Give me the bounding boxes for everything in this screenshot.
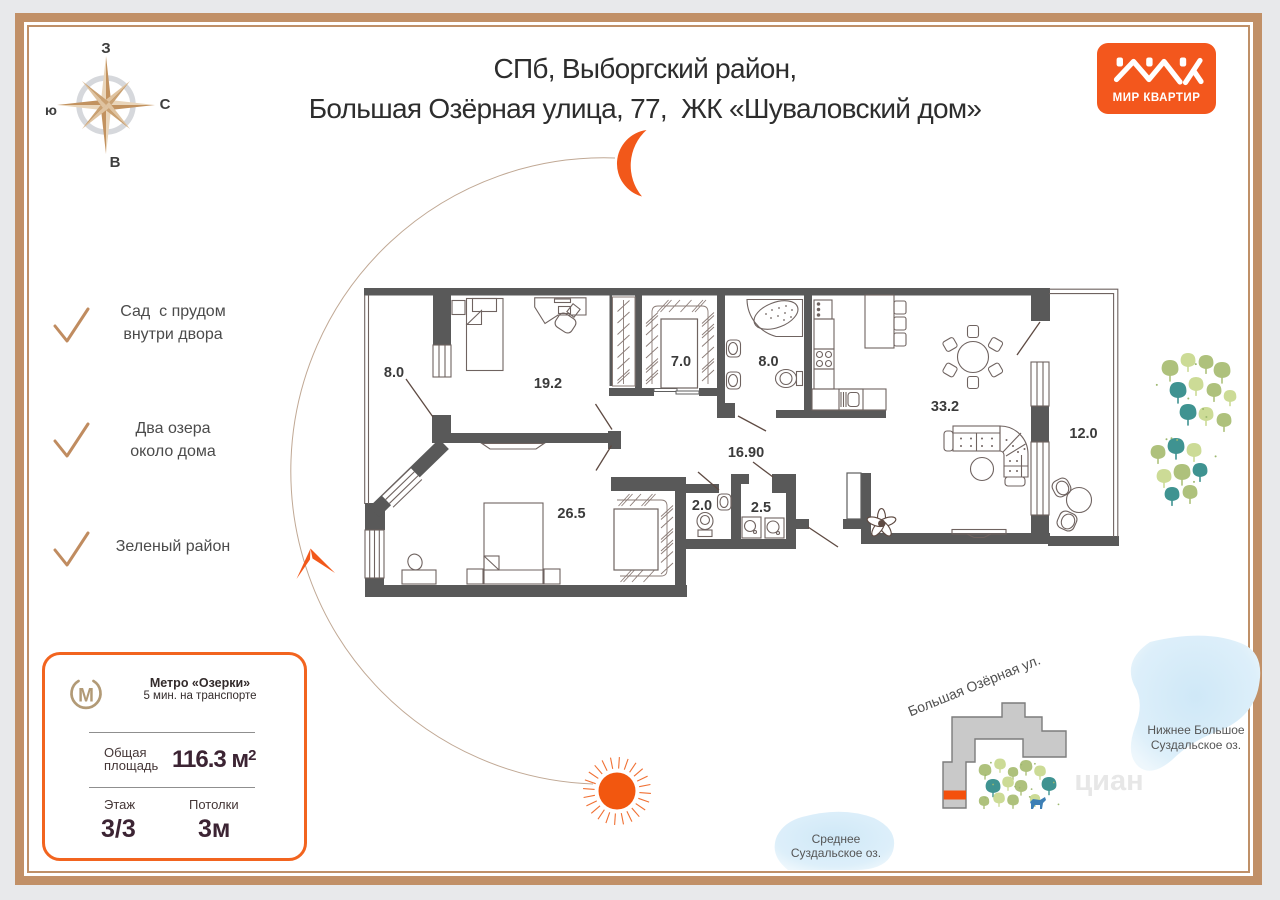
svg-text:МИР КВАРТИР: МИР КВАРТИР — [1113, 92, 1201, 104]
svg-text:ю: ю — [45, 102, 57, 118]
svg-text:12.0: 12.0 — [1069, 426, 1097, 442]
svg-text:2.0: 2.0 — [692, 498, 712, 514]
svg-text:Суздальское оз.: Суздальское оз. — [791, 846, 881, 860]
svg-text:Нижнее Большое: Нижнее Большое — [1147, 723, 1245, 737]
svg-text:циан: циан — [1074, 765, 1143, 797]
svg-text:26.5: 26.5 — [557, 506, 585, 522]
svg-text:М: М — [78, 686, 94, 707]
svg-text:7.0: 7.0 — [671, 354, 691, 370]
svg-text:19.2: 19.2 — [534, 376, 562, 392]
svg-text:В: В — [110, 154, 121, 171]
svg-text:З: З — [101, 40, 110, 57]
svg-text:8.0: 8.0 — [384, 365, 404, 381]
svg-text:16.90: 16.90 — [728, 445, 764, 461]
svg-text:2.5: 2.5 — [751, 500, 771, 516]
svg-text:8.0: 8.0 — [758, 354, 778, 370]
svg-text:Среднее: Среднее — [812, 832, 861, 846]
svg-text:33.2: 33.2 — [931, 399, 959, 415]
svg-text:С: С — [160, 96, 171, 113]
svg-text:Суздальское оз.: Суздальское оз. — [1151, 738, 1241, 752]
